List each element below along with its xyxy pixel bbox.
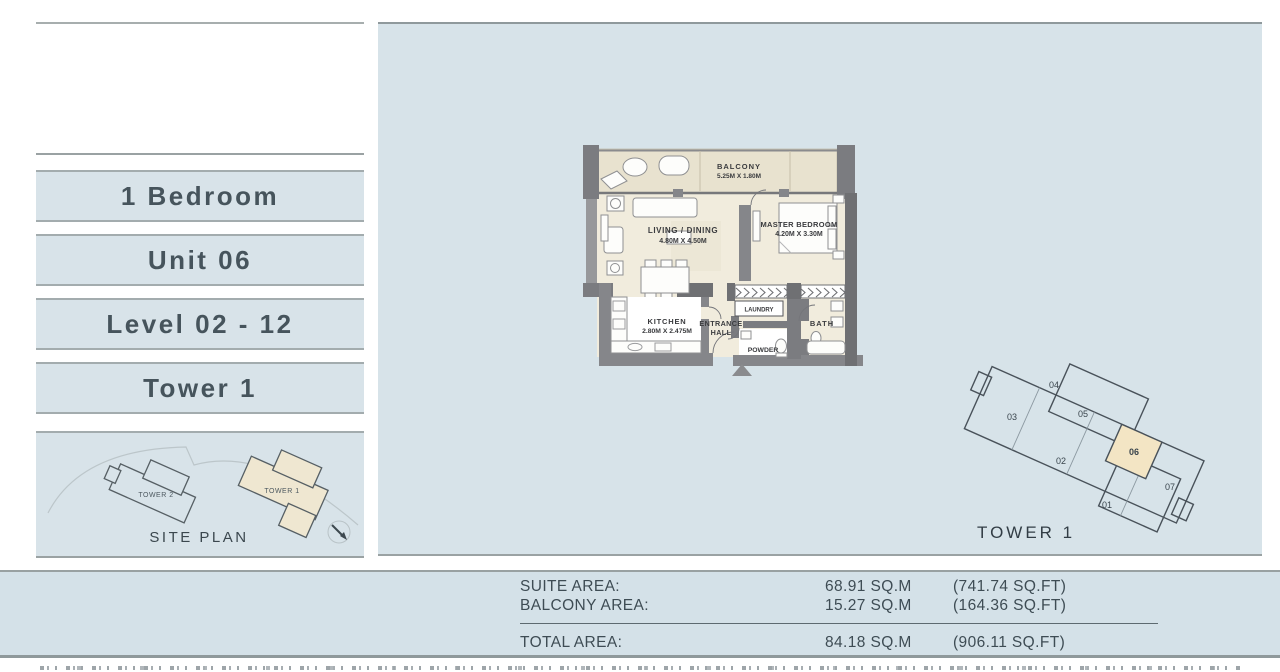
unit-number-label: Unit 06 — [148, 245, 252, 276]
unit-06: 06 — [1129, 447, 1139, 457]
living-label: LIVING / DINING — [648, 226, 718, 235]
site-tower2-label: TOWER 2 — [138, 492, 173, 499]
tower-badge: Tower 1 — [36, 362, 364, 414]
floor-plan-drawing: BALCONY 5.25M X 1.80M LIVING / DINING 4.… — [583, 143, 875, 393]
unit-05: 05 — [1078, 409, 1088, 419]
balcony-area-sqft: (164.36 SQ.FT) — [953, 597, 1158, 615]
suite-area-label: SUITE AREA: — [520, 578, 825, 596]
balcony-seat-icon — [659, 156, 689, 175]
unit-01: 01 — [1102, 500, 1112, 510]
site-plan: TOWER 2 TOWER 1 SITE PLAN — [36, 431, 364, 558]
unit-type-label: 1 Bedroom — [121, 181, 279, 212]
tower-label: Tower 1 — [143, 373, 257, 404]
north-arrow-icon — [328, 521, 350, 543]
sofa-icon — [633, 198, 697, 217]
key-plan-drawing: 03 04 05 02 06 07 01 TOWER 1 — [944, 360, 1224, 560]
suite-area-row: SUITE AREA: 68.91 SQ.M (741.74 SQ.FT) — [520, 577, 1158, 596]
suite-area-sqft: (741.74 SQ.FT) — [953, 578, 1158, 596]
kitchen-dim: 2.80M X 2.475M — [642, 328, 692, 335]
key-plan-title: TOWER 1 — [977, 523, 1075, 542]
entrance-label-2: HALL — [711, 328, 732, 337]
total-area-row: TOTAL AREA: 84.18 SQ.M (906.11 SQ.FT) — [520, 633, 1158, 652]
powder-label: POWDER — [748, 347, 779, 354]
area-summary-table: SUITE AREA: 68.91 SQ.M (741.74 SQ.FT) BA… — [520, 577, 1158, 652]
balcony-area-row: BALCONY AREA: 15.27 SQ.M (164.36 SQ.FT) — [520, 596, 1158, 615]
site-plan-drawing: TOWER 2 TOWER 1 SITE PLAN — [36, 433, 364, 556]
area-divider — [520, 623, 1158, 624]
living-dim: 4.80M X 4.50M — [659, 238, 707, 245]
floorplan-panel: BALCONY 5.25M X 1.80M LIVING / DINING 4.… — [378, 22, 1262, 556]
unit-07: 07 — [1165, 482, 1175, 492]
site-tower1-label: TOWER 1 — [264, 488, 299, 495]
unit-02: 02 — [1056, 456, 1066, 466]
total-area-label: TOTAL AREA: — [520, 634, 825, 652]
balcony-table-icon — [623, 158, 647, 176]
logo-placeholder — [36, 22, 364, 155]
tower-key-plan: 03 04 05 02 06 07 01 TOWER 1 — [944, 360, 1224, 560]
unit-04: 04 — [1049, 380, 1059, 390]
bath-label: BATH — [810, 319, 834, 328]
unit-floor-plan: BALCONY 5.25M X 1.80M LIVING / DINING 4.… — [583, 143, 875, 393]
balcony-area-sqm: 15.27 SQ.M — [825, 597, 953, 615]
bathtub-icon — [807, 341, 845, 354]
kitchen-label: KITCHEN — [648, 317, 687, 326]
laundry-label: LAUNDRY — [744, 308, 773, 314]
balcony-label: BALCONY — [717, 162, 761, 171]
tv-console-icon — [601, 215, 608, 241]
suite-area-sqm: 68.91 SQ.M — [825, 578, 953, 596]
master-label: MASTER BEDROOM — [760, 220, 837, 229]
level-label: Level 02 - 12 — [106, 309, 293, 340]
unit-type-badge: 1 Bedroom — [36, 170, 364, 222]
total-area-sqft: (906.11 SQ.FT) — [953, 634, 1158, 652]
site-plan-caption: SITE PLAN — [149, 529, 248, 546]
entrance-label-1: ENTRANCE — [699, 319, 742, 328]
key-plan-outline — [949, 360, 1224, 541]
unit-number-badge: Unit 06 — [36, 234, 364, 286]
clipped-disclaimer-text — [40, 666, 1240, 670]
level-badge: Level 02 - 12 — [36, 298, 364, 350]
unit-03: 03 — [1007, 412, 1017, 422]
balcony-area-label: BALCONY AREA: — [520, 597, 825, 615]
balcony-dim: 5.25M X 1.80M — [717, 173, 761, 180]
total-area-sqm: 84.18 SQ.M — [825, 634, 953, 652]
dining-table-icon — [641, 267, 689, 293]
master-dim: 4.20M X 3.30M — [775, 231, 823, 238]
